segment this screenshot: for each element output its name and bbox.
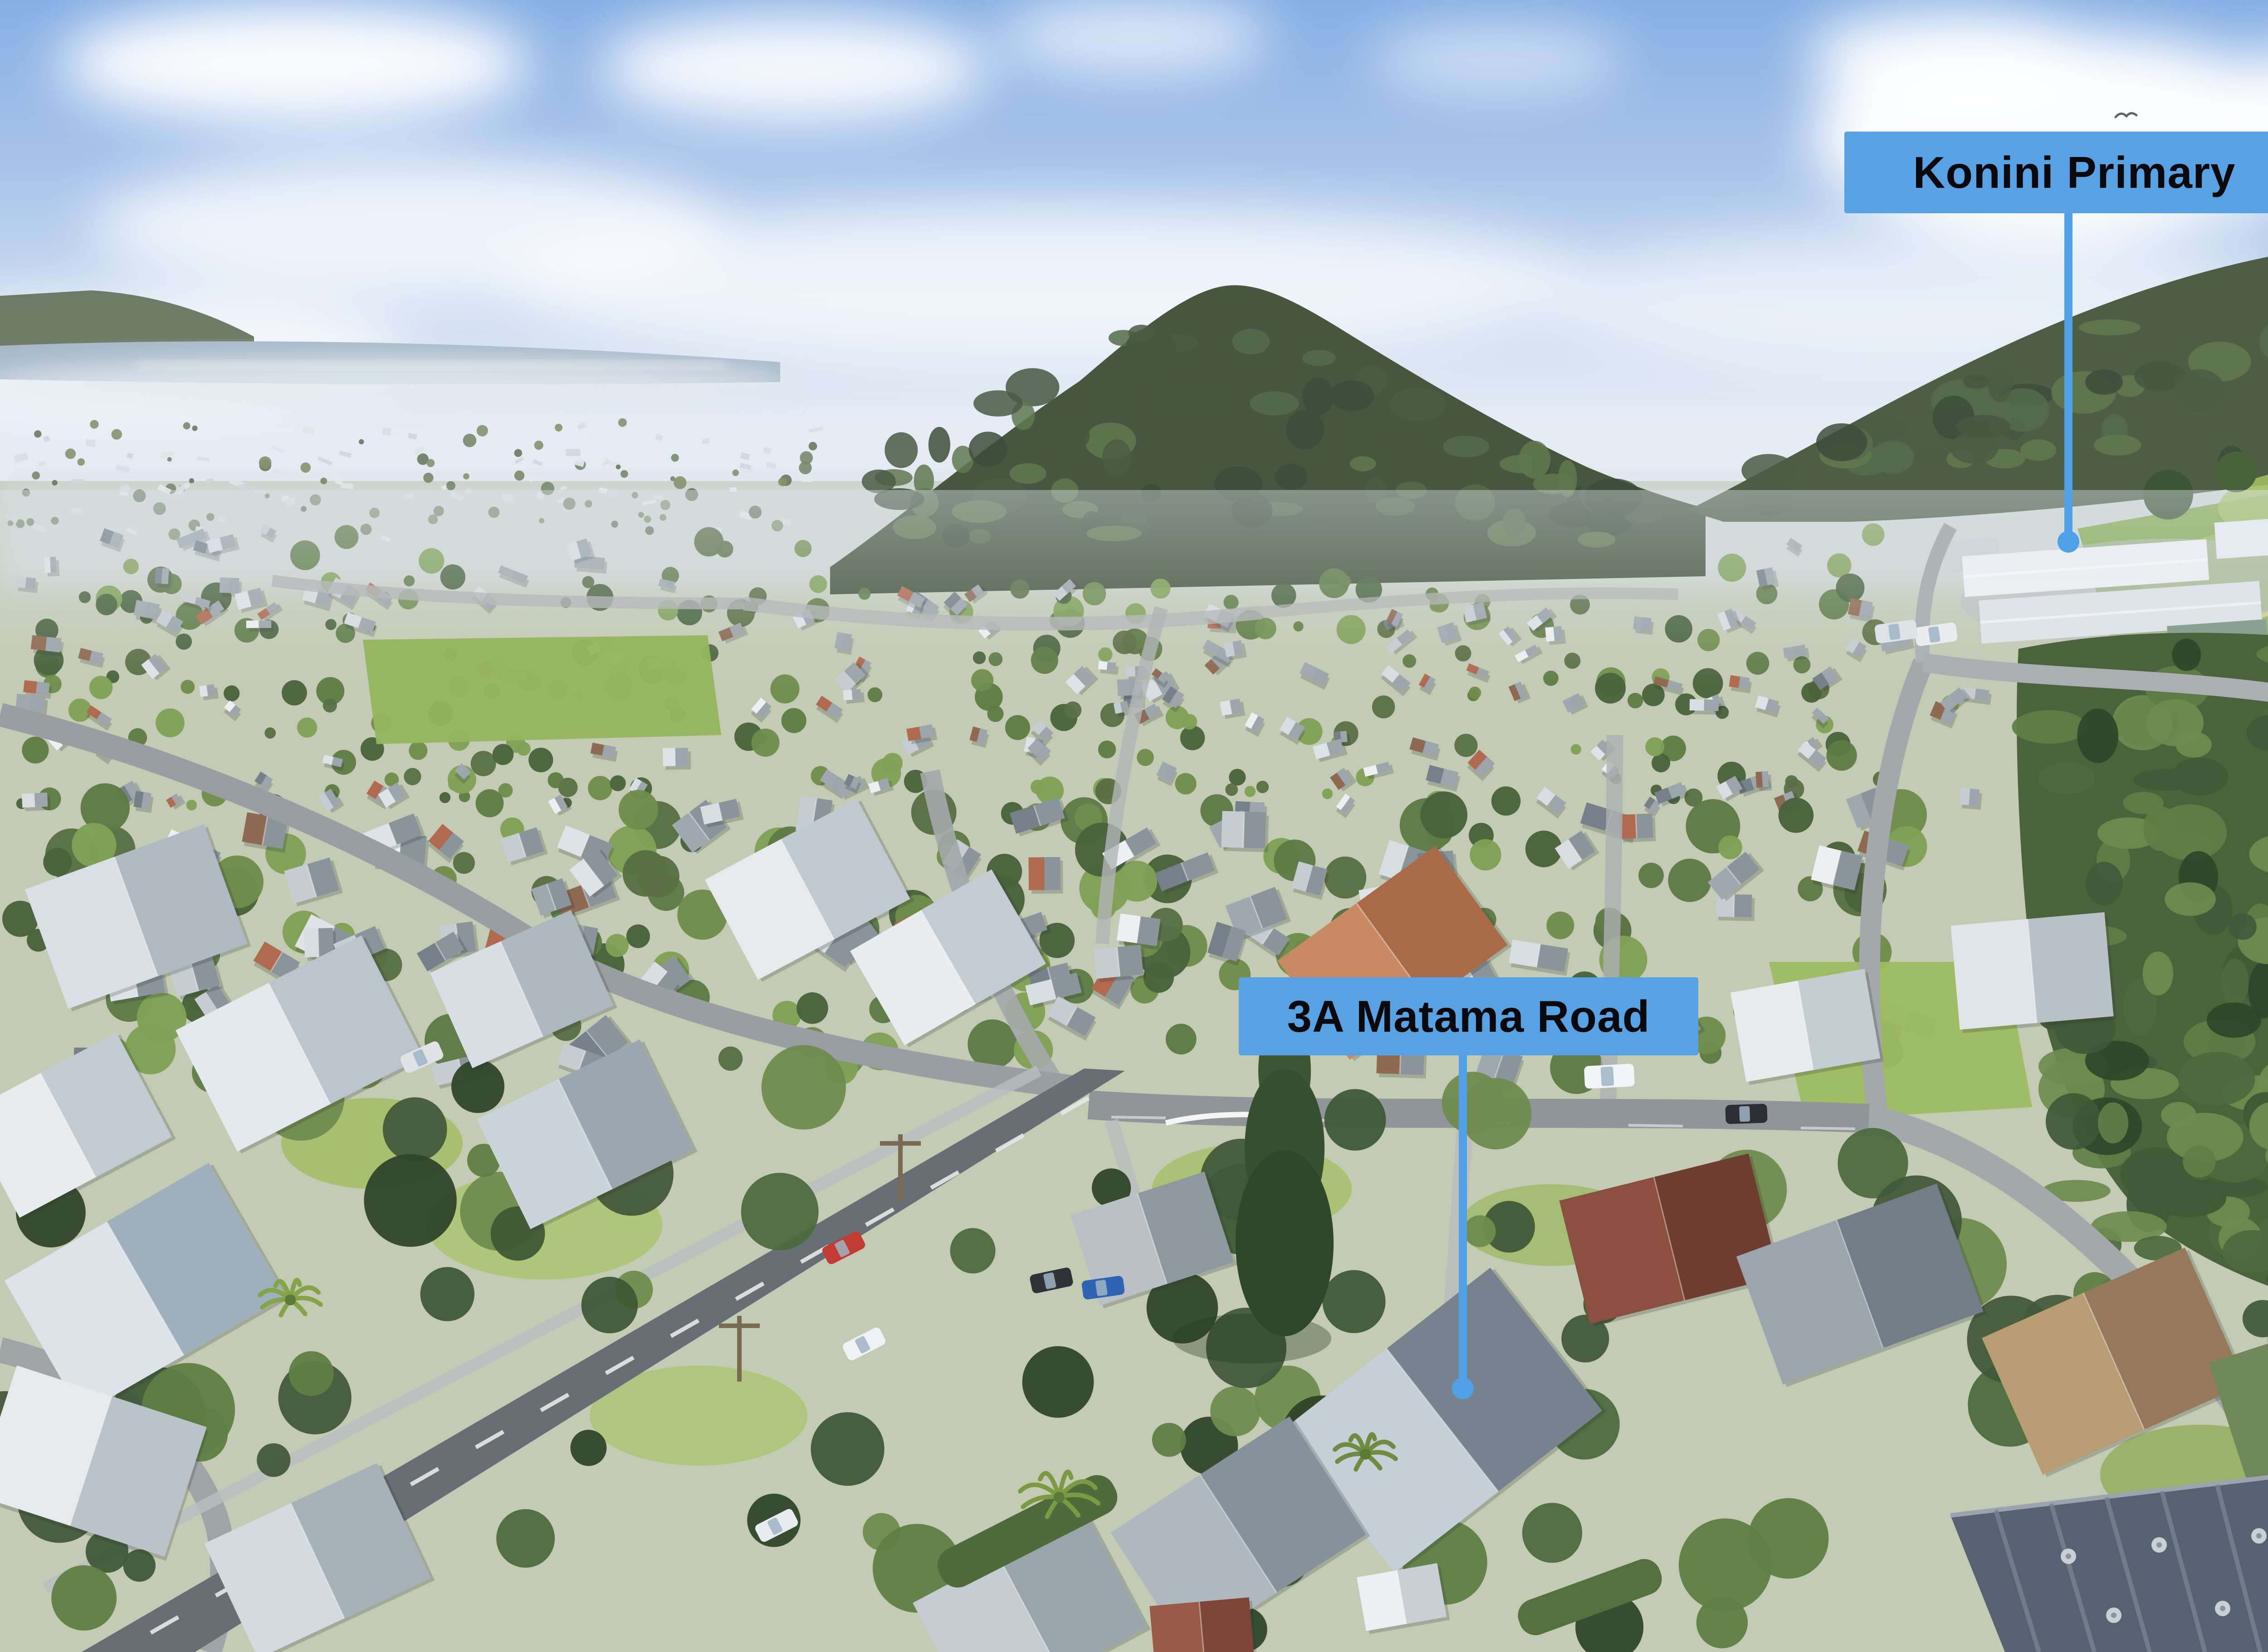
callout-3a-matama-road: 3A Matama Road: [1239, 977, 1698, 1055]
leader-line-matama: [1459, 1054, 1467, 1388]
callout-matama-label: 3A Matama Road: [1287, 991, 1650, 1042]
callout-konini-label: Konini Primary: [1913, 147, 2235, 198]
aerial-property-photo: Konini Primary 3A Matama Road: [0, 0, 2268, 1652]
callout-konini-primary: Konini Primary: [1844, 132, 2268, 213]
leader-dot-matama: [1452, 1377, 1474, 1399]
leader-dot-konini: [2058, 531, 2079, 553]
leader-line-konini: [2064, 212, 2072, 542]
aerial-scene-illustration: [0, 0, 2268, 1652]
